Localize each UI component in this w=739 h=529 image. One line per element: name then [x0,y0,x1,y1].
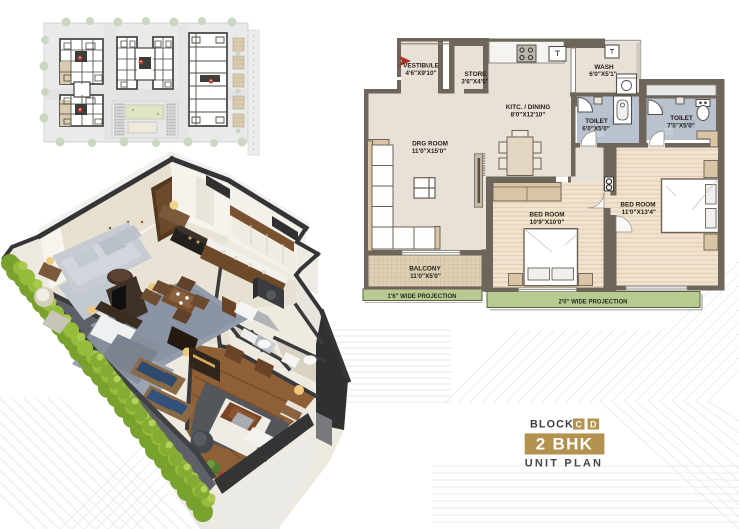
svg-text:2 BHK: 2 BHK [536,434,594,453]
svg-text:WASH: WASH [594,64,614,71]
svg-text:4'6"X9'10": 4'6"X9'10" [405,70,436,77]
svg-text:11'0"X5'0": 11'0"X5'0" [410,273,441,280]
svg-text:DRG ROOM: DRG ROOM [412,141,448,148]
svg-text:KITC. / DINING: KITC. / DINING [506,104,550,111]
svg-text:3'6"X4'5": 3'6"X4'5" [461,78,489,85]
svg-text:UNIT PLAN: UNIT PLAN [525,458,603,470]
svg-text:8'0"X12'10": 8'0"X12'10" [511,111,546,118]
svg-text:6'0"X5'0": 6'0"X5'0" [582,125,610,132]
svg-text:2'0" WIDE PROJECTION: 2'0" WIDE PROJECTION [559,299,628,305]
svg-text:STORE: STORE [465,71,488,78]
svg-text:7'5"X5'0": 7'5"X5'0" [667,122,695,129]
svg-text:D: D [590,419,597,429]
svg-text:10'9"X10'0": 10'9"X10'0" [530,219,565,226]
svg-text:11'0"X13'4": 11'0"X13'4" [622,209,656,216]
svg-text:BED ROOM: BED ROOM [529,212,564,219]
svg-text:11'0"X15'0": 11'0"X15'0" [412,148,446,155]
svg-text:BLOCK: BLOCK [530,419,574,431]
svg-text:BALCONY: BALCONY [409,266,441,273]
svg-text:TOILET: TOILET [670,115,693,122]
svg-text:TOILET: TOILET [585,118,608,125]
svg-text:C: C [575,419,582,429]
svg-text:1'6" WIDE PROJECTION: 1'6" WIDE PROJECTION [388,294,457,300]
svg-text:6'0"X5'1": 6'0"X5'1" [589,71,617,78]
svg-text:VESTIBULE: VESTIBULE [403,63,440,70]
svg-text:BED ROOM: BED ROOM [620,202,655,209]
